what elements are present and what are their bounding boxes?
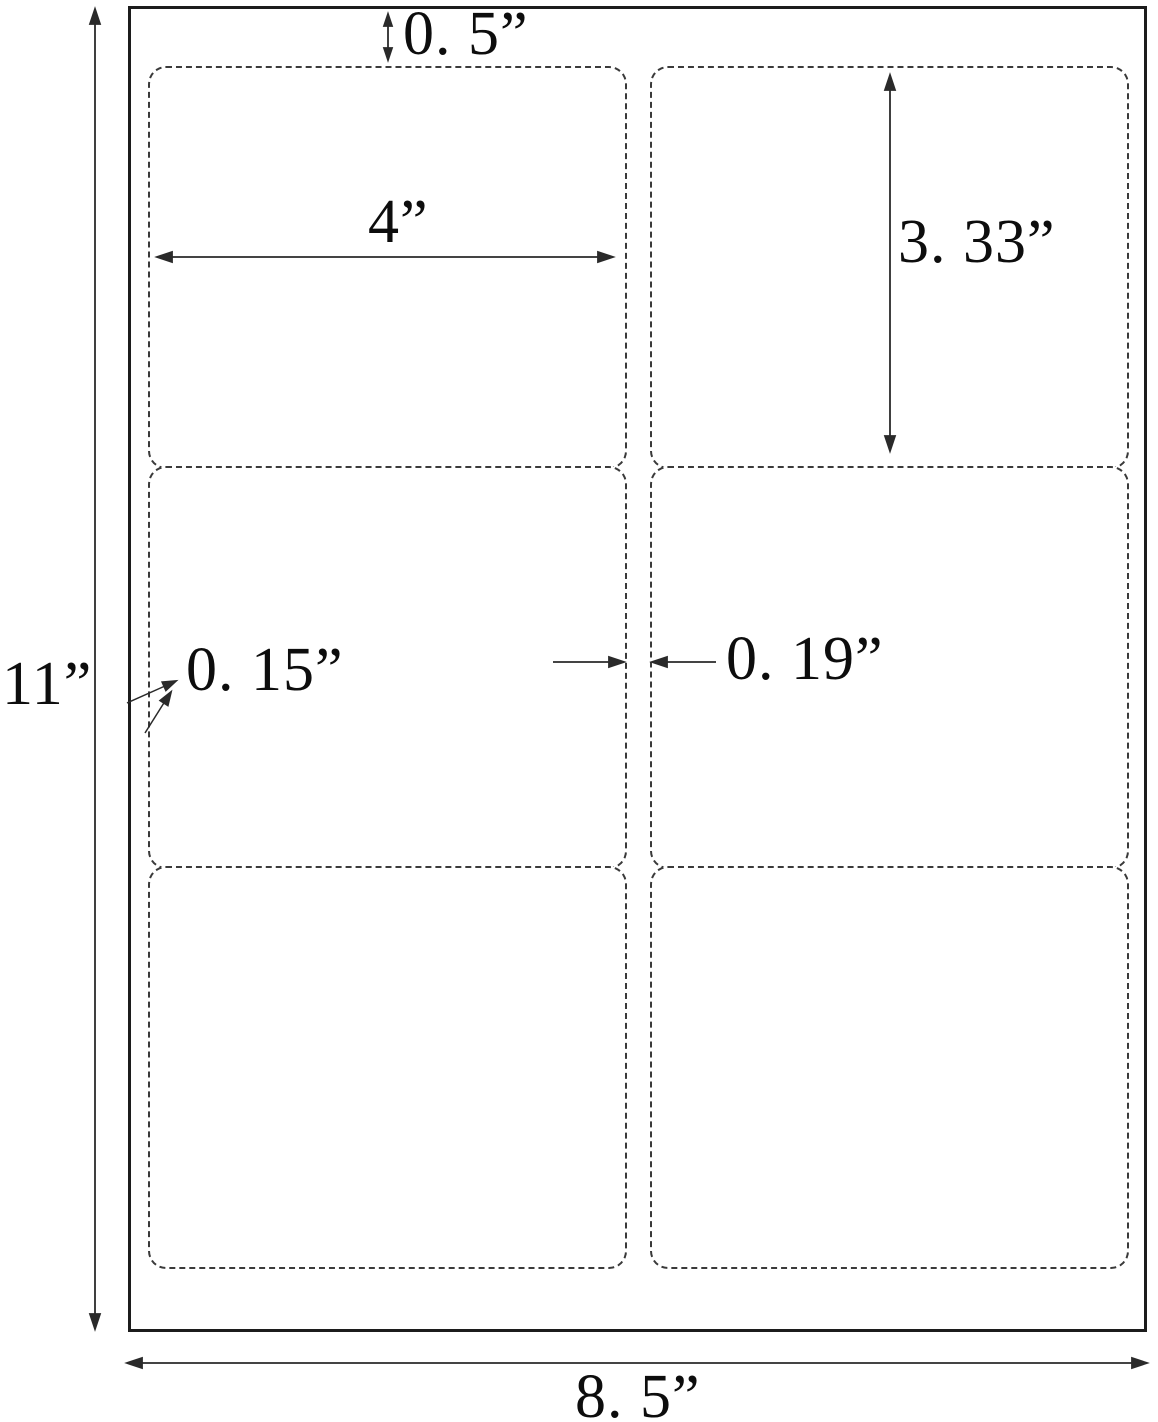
- page-height-dim-label: 11”: [2, 653, 92, 715]
- label-cell-r1c1: [148, 66, 627, 469]
- side-margin-dim-label: 0. 15”: [186, 639, 344, 701]
- column-gap-dim-label: 0. 19”: [726, 628, 884, 690]
- top-margin-dim-label: 0. 5”: [403, 3, 529, 65]
- page-width-dim-label: 8. 5”: [575, 1366, 701, 1422]
- label-cell-r3c1: [148, 866, 627, 1269]
- label-sheet-diagram: 0. 5” 4” 3. 33” 0. 15” 0. 19” 11” 8. 5”: [0, 0, 1158, 1422]
- label-cell-r2c2: [650, 466, 1129, 869]
- label-cell-r1c2: [650, 66, 1129, 469]
- label-cell-r3c2: [650, 866, 1129, 1269]
- label-width-dim-label: 4”: [368, 191, 429, 253]
- label-height-dim-label: 3. 33”: [898, 211, 1056, 273]
